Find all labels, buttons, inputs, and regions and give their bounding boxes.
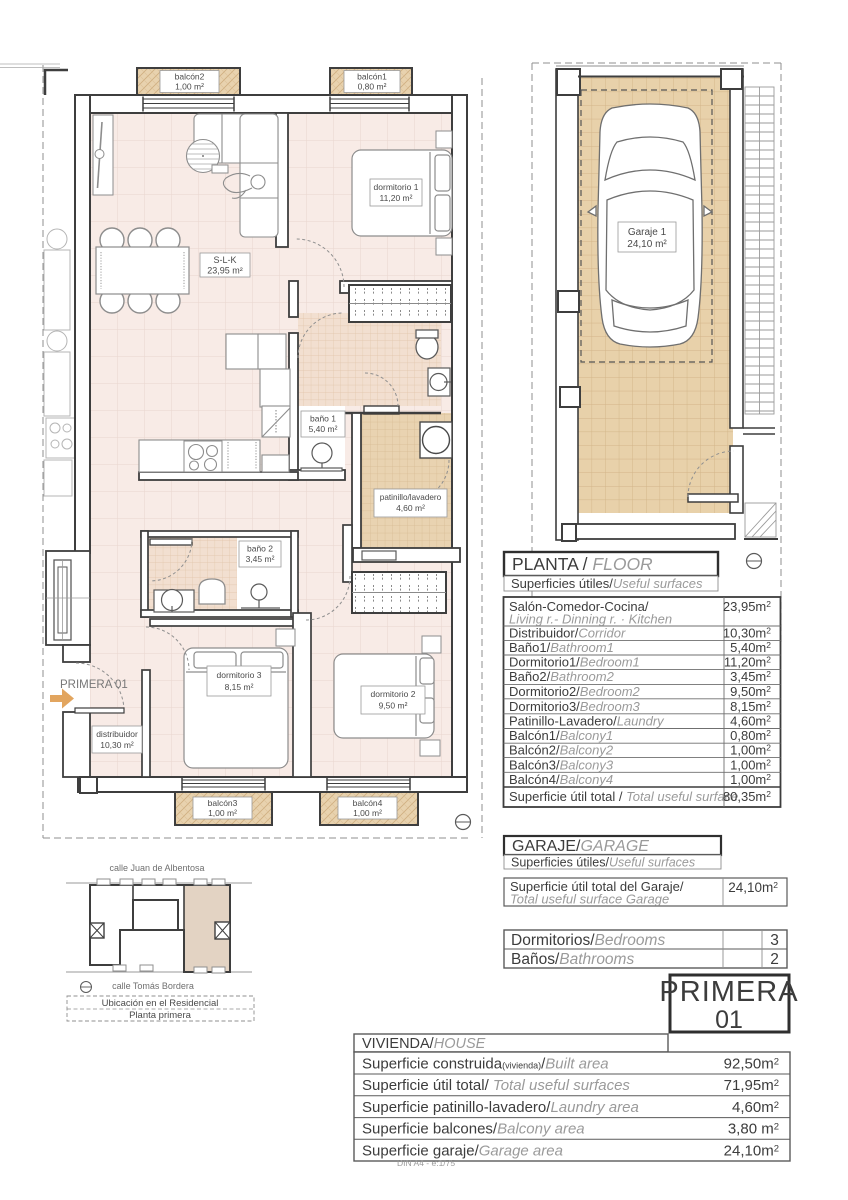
- svg-text:balcón4: balcón4: [353, 798, 383, 808]
- svg-text:10,30 m²: 10,30 m²: [100, 740, 134, 750]
- svg-text:calle Tomás Bordera: calle Tomás Bordera: [112, 981, 194, 991]
- svg-text:dormitorio 2: dormitorio 2: [371, 689, 416, 699]
- svg-text:Superficie útil total / Total: Superficie útil total / Total useful sur…: [509, 789, 738, 804]
- svg-text:Ubicación en el Residencial: Ubicación en el Residencial: [102, 998, 219, 1009]
- svg-text:4,60 m²: 4,60 m²: [396, 503, 425, 513]
- svg-text:80,35m2: 80,35m2: [723, 789, 771, 804]
- svg-text:Superficies útiles/Useful surf: Superficies útiles/Useful surfaces: [511, 856, 695, 870]
- svg-text:Dormitorios/Bedrooms: Dormitorios/Bedrooms: [511, 932, 665, 949]
- svg-text:Balcón3/Balcony3: Balcón3/Balcony3: [509, 757, 614, 772]
- svg-text:Baños/Bathrooms: Baños/Bathrooms: [511, 951, 634, 968]
- svg-text:patinillo/lavadero: patinillo/lavadero: [380, 493, 442, 502]
- svg-text:8,15 m²: 8,15 m²: [225, 682, 254, 692]
- svg-text:1,00 m²: 1,00 m²: [208, 808, 237, 818]
- svg-text:Living r.- Dinning r. · Kitche: Living r.- Dinning r. · Kitchen: [509, 612, 672, 627]
- svg-text:dormitorio 1: dormitorio 1: [374, 182, 419, 192]
- svg-text:baño 1: baño 1: [310, 414, 336, 424]
- svg-text:0,80 m²: 0,80 m²: [358, 82, 387, 92]
- svg-text:baño 2: baño 2: [247, 544, 273, 554]
- svg-text:Patinillo-Lavadero/Laundry: Patinillo-Lavadero/Laundry: [509, 714, 665, 729]
- svg-text:Baño1/Bathroom1: Baño1/Bathroom1: [509, 640, 614, 655]
- svg-text:PRIMERA 01: PRIMERA 01: [60, 679, 128, 691]
- svg-text:Dormitorio1/Bedroom1: Dormitorio1/Bedroom1: [509, 655, 640, 670]
- svg-text:Superficie útil total/ Total u: Superficie útil total/ Total useful surf…: [362, 1077, 630, 1094]
- svg-text:10,30m2: 10,30m2: [723, 626, 771, 641]
- svg-text:calle Juan de Albentosa: calle Juan de Albentosa: [109, 863, 204, 873]
- svg-text:Baño2/Bathroom2: Baño2/Bathroom2: [509, 669, 615, 684]
- svg-text:balcón3: balcón3: [208, 798, 238, 808]
- svg-text:balcón2: balcón2: [175, 72, 205, 82]
- svg-text:1,00m2: 1,00m2: [730, 772, 771, 787]
- svg-text:1,00 m²: 1,00 m²: [353, 808, 382, 818]
- svg-text:92,50m2: 92,50m2: [724, 1056, 779, 1073]
- svg-text:distribuidor: distribuidor: [96, 729, 138, 739]
- svg-text:dormitorio 3: dormitorio 3: [217, 670, 262, 680]
- svg-text:S-L-K: S-L-K: [213, 255, 236, 265]
- svg-text:Superficie garaje/Garage area: Superficie garaje/Garage area: [362, 1143, 563, 1160]
- svg-text:24,10m2: 24,10m2: [724, 1143, 779, 1160]
- svg-text:GARAJE/GARAGE: GARAJE/GARAGE: [512, 838, 649, 855]
- svg-text:3,45m2: 3,45m2: [730, 669, 771, 684]
- svg-text:9,50m2: 9,50m2: [730, 684, 771, 699]
- svg-text:24,10m2: 24,10m2: [728, 880, 778, 895]
- svg-text:Total useful surface Garage: Total useful surface Garage: [510, 892, 669, 907]
- svg-text:01: 01: [715, 1006, 743, 1034]
- svg-text:PLANTA / FLOOR: PLANTA / FLOOR: [512, 554, 653, 574]
- svg-text:1,00m2: 1,00m2: [730, 743, 771, 758]
- svg-text:0,80m2: 0,80m2: [730, 728, 771, 743]
- svg-text:VIVIENDA/HOUSE: VIVIENDA/HOUSE: [362, 1036, 486, 1052]
- svg-text:balcón1: balcón1: [357, 72, 387, 82]
- svg-text:Balcón1/Balcony1: Balcón1/Balcony1: [509, 728, 613, 743]
- svg-text:23,95 m²: 23,95 m²: [207, 266, 243, 276]
- svg-text:4,60m2: 4,60m2: [730, 714, 771, 729]
- svg-text:Superficie construida(vivienda: Superficie construida(vivienda)/Built ar…: [362, 1056, 609, 1073]
- svg-text:8,15m2: 8,15m2: [730, 699, 771, 714]
- svg-text:Planta primera: Planta primera: [129, 1010, 191, 1021]
- svg-text:11,20 m²: 11,20 m²: [380, 193, 413, 203]
- svg-text:Dormitorio2/Bedroom2: Dormitorio2/Bedroom2: [509, 684, 641, 699]
- svg-text:Balcón2/Balcony2: Balcón2/Balcony2: [509, 743, 614, 758]
- svg-text:Superficies útiles/Useful surf: Superficies útiles/Useful surfaces: [511, 576, 703, 591]
- svg-text:24,10 m²: 24,10 m²: [627, 239, 667, 250]
- svg-text:3,45 m²: 3,45 m²: [246, 554, 275, 564]
- svg-text:2: 2: [770, 951, 779, 968]
- svg-text:3,80 m2: 3,80 m2: [728, 1121, 779, 1138]
- svg-text:DIN A4 - e:1/75: DIN A4 - e:1/75: [397, 1158, 455, 1168]
- svg-text:4,60m2: 4,60m2: [732, 1099, 779, 1116]
- svg-text:23,95m2: 23,95m2: [723, 599, 771, 614]
- svg-text:1,00 m²: 1,00 m²: [175, 82, 204, 92]
- svg-text:Balcón4/Balcony4: Balcón4/Balcony4: [509, 772, 613, 787]
- svg-text:71,95m2: 71,95m2: [724, 1077, 779, 1094]
- svg-text:Superficie balcones/Balcony ar: Superficie balcones/Balcony area: [362, 1121, 585, 1138]
- svg-text:Garaje 1: Garaje 1: [628, 227, 667, 238]
- svg-text:3: 3: [770, 932, 779, 949]
- svg-text:PRIMERA: PRIMERA: [659, 976, 798, 1008]
- svg-text:1,00m2: 1,00m2: [730, 757, 771, 772]
- svg-text:5,40m2: 5,40m2: [730, 640, 771, 655]
- svg-text:9,50 m²: 9,50 m²: [379, 701, 408, 711]
- svg-text:Distribuidor/Corridor: Distribuidor/Corridor: [509, 626, 626, 641]
- svg-text:Dormitorio3/Bedroom3: Dormitorio3/Bedroom3: [509, 699, 641, 714]
- svg-text:Superficie patinillo-lavadero/: Superficie patinillo-lavadero/Laundry ar…: [362, 1099, 639, 1116]
- svg-text:11,20m2: 11,20m2: [724, 655, 771, 670]
- svg-text:5,40 m²: 5,40 m²: [309, 424, 338, 434]
